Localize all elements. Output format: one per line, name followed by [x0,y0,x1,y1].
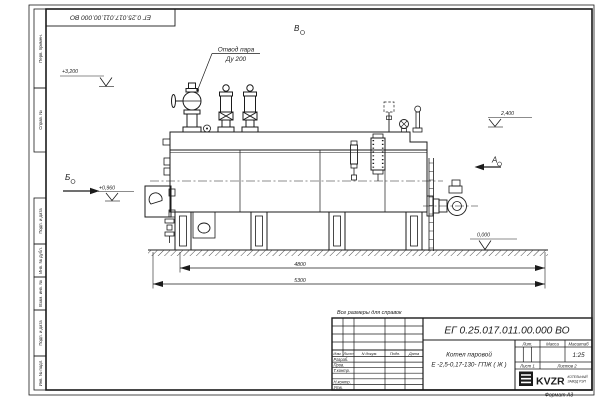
sheet-frame [29,5,594,395]
dimension-lines [153,252,545,289]
top-stamp-number: ЕГ 0.25.017.011.00.000 ВО [70,13,151,20]
sheets-cell: Листов 2 [556,364,577,369]
mass-header: Масса [546,341,559,346]
boiler-general-view-drawing: ЕГ 0.25.017.011.00.000 ВО Перв. примен. … [0,0,600,400]
reference-note: Все размеры для справок [337,310,402,316]
water-gauge-glass [351,141,358,180]
margin-stamp-label: Инв. № подл. [38,360,43,387]
view-b-label: Б [65,173,70,182]
steam-outlet-dn-label: Ду 200 [225,56,247,63]
product-name-line1: Котел паровой [446,351,492,359]
margin-stamp-label: Инв. № дубл. [38,247,43,274]
drawing-linework [29,5,594,395]
scale-value: 1:25 [572,352,585,359]
col-ndokum: N докум. [362,351,378,356]
margin-stamp-label: Подп. и дата [38,208,43,234]
margin-stamp-label: Взам. инв. № [38,280,43,307]
margin-stamp-label: Перв. примен. [38,34,43,63]
drawing-text: ЕГ 0.25.017.011.00.000 ВО Перв. примен. … [38,13,589,398]
view-a-arrow [475,164,485,170]
elevation-0960: +0,960 [99,186,115,192]
row-razrab: Разраб. [334,357,349,362]
sheet-cell: Лист 1 [519,364,535,369]
row-utv: Утв. [334,385,343,390]
row-tkontr: Т.контр. [334,368,351,373]
margin-stamp-label: Справ. № [38,110,43,130]
view-v-label: В [294,24,300,33]
water-level-column [371,134,385,181]
handhole [198,223,210,233]
row-nkontr: Н.контр. [334,379,351,384]
annotation-symbols [60,31,532,250]
drum-fittings [203,102,422,132]
elevation-0000: 0,000 [477,233,490,239]
col-list: Лист [342,351,354,356]
boiler-body [150,132,443,212]
product-name-line2: Е -2,5-0,17-130- ГПЖ ( Ж ) [431,362,506,369]
support-legs [175,212,422,250]
front-box [145,186,175,243]
view-a-label: А [491,156,497,165]
col-izm: Изм. [333,351,341,356]
steam-outlet-label: Отвод пара [218,46,255,54]
format-note: Формат А3 [545,393,573,399]
elevation-3200: +3,200 [62,69,78,75]
col-podp: Подп. [390,351,400,356]
logo-sub2: ЗАВОД РЭП [568,379,587,383]
row-prov: Пров. [334,363,345,368]
drawing-sheet: ЕГ 0.25.017.011.00.000 ВО Перв. примен. … [0,0,600,400]
kvzr-logo-text: KVZR [536,376,565,388]
ground-line [148,250,548,256]
burner [423,180,478,216]
lit-header: Лит. [521,341,532,346]
title-doc-number: ЕГ 0.25.017.011.00.000 ВО [444,326,569,337]
kvzr-logo-icon [519,372,533,387]
elevation-2400: 2,400 [500,111,514,117]
safety-valve-1 [218,85,234,132]
dimension-4800: 4800 [294,262,306,268]
safety-valve-2 [242,85,258,132]
logo-sub1: КОТЕЛЬНЫЙ [568,375,589,379]
margin-stamp-label: Подп. и дата [38,320,43,346]
col-data: Дата [408,351,420,356]
dimension-5300: 5300 [294,278,306,284]
scale-header: Масштаб [568,341,589,346]
